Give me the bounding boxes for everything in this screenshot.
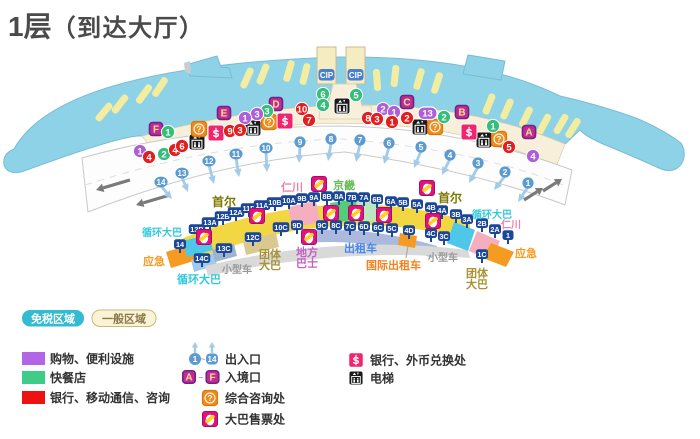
svg-text:3C: 3C — [439, 232, 449, 241]
svg-text:6B: 6B — [372, 195, 381, 204]
svg-text:5C: 5C — [387, 224, 397, 233]
svg-text:出租车: 出租车 — [344, 241, 377, 255]
svg-text:S: S — [465, 127, 472, 139]
svg-text:循环大巴: 循环大巴 — [142, 226, 182, 239]
svg-text:13: 13 — [422, 109, 433, 120]
svg-text:3: 3 — [476, 158, 481, 168]
svg-text:A: A — [525, 128, 532, 139]
svg-text:国际出租车: 国际出租车 — [366, 258, 421, 272]
svg-text:银行、移动通信、咨询: 银行、移动通信、咨询 — [50, 390, 170, 405]
svg-text:小型车: 小型车 — [427, 251, 458, 264]
svg-text:A: A — [185, 373, 192, 384]
svg-text:大巴: 大巴 — [466, 277, 488, 291]
svg-text:F: F — [209, 373, 215, 384]
svg-text:10: 10 — [262, 144, 271, 153]
svg-text:1C: 1C — [477, 250, 487, 259]
svg-text:3: 3 — [264, 106, 269, 117]
svg-text:巴士: 巴士 — [296, 256, 318, 270]
svg-text:1: 1 — [506, 231, 510, 240]
svg-text:大巴售票处: 大巴售票处 — [225, 412, 286, 427]
svg-text:7B: 7B — [347, 193, 356, 202]
svg-text:应急: 应急 — [143, 254, 165, 268]
svg-text:12B: 12B — [216, 212, 229, 221]
svg-text:9B: 9B — [297, 194, 306, 203]
svg-text:1: 1 — [242, 113, 248, 124]
svg-text:5A: 5A — [412, 200, 422, 209]
svg-text:1: 1 — [193, 354, 198, 364]
svg-text:10A: 10A — [282, 196, 296, 205]
svg-text:1层（到达大厅）: 1层（到达大厅） — [8, 11, 205, 42]
svg-text:购物、便利设施: 购物、便利设施 — [50, 351, 134, 366]
svg-text:13C: 13C — [217, 244, 231, 253]
svg-text:2: 2 — [441, 112, 446, 123]
svg-text:7: 7 — [306, 115, 311, 126]
svg-text:14: 14 — [157, 178, 166, 187]
svg-text:电梯: 电梯 — [370, 371, 394, 386]
svg-text:10: 10 — [297, 104, 308, 115]
svg-text:6C: 6C — [373, 223, 383, 232]
svg-text:大巴: 大巴 — [259, 258, 281, 272]
svg-text:团体: 团体 — [466, 266, 489, 280]
svg-text:9: 9 — [227, 126, 232, 137]
svg-text:S: S — [352, 355, 359, 367]
svg-text:1: 1 — [526, 178, 531, 188]
svg-text:5: 5 — [419, 142, 424, 152]
svg-text:S: S — [212, 128, 219, 140]
svg-text:S: S — [281, 116, 288, 128]
svg-text:?: ? — [207, 393, 212, 403]
svg-text:2A: 2A — [490, 225, 500, 234]
svg-text:?: ? — [266, 117, 271, 127]
svg-text:9: 9 — [298, 137, 303, 147]
svg-text:2: 2 — [503, 167, 508, 177]
svg-text:6A: 6A — [386, 197, 396, 206]
svg-text:~: ~ — [198, 373, 203, 383]
svg-text:1: 1 — [490, 121, 496, 132]
svg-text:入境口: 入境口 — [225, 370, 261, 385]
svg-text:?: ? — [496, 134, 501, 144]
svg-text:4: 4 — [530, 151, 536, 162]
svg-text:团体: 团体 — [259, 247, 282, 261]
svg-text:6D: 6D — [359, 222, 368, 231]
svg-text:9D: 9D — [292, 221, 301, 230]
svg-text:C: C — [403, 98, 410, 109]
svg-text:5: 5 — [506, 142, 512, 153]
svg-text:出入口: 出入口 — [225, 352, 261, 367]
svg-text:1: 1 — [389, 117, 395, 128]
svg-text:10B: 10B — [268, 198, 281, 207]
svg-text:8: 8 — [329, 134, 334, 144]
svg-text:9C: 9C — [317, 221, 327, 230]
svg-text:应急: 应急 — [515, 246, 537, 260]
svg-text:2: 2 — [161, 149, 166, 160]
svg-text:8: 8 — [365, 113, 370, 124]
svg-text:8C: 8C — [331, 221, 341, 230]
svg-text:京畿: 京畿 — [333, 178, 355, 192]
svg-text:CIP: CIP — [349, 71, 363, 80]
svg-text:仁川: 仁川 — [281, 180, 303, 194]
svg-text:3A: 3A — [462, 215, 472, 224]
svg-text:10C: 10C — [274, 223, 288, 232]
svg-text:4B: 4B — [426, 203, 435, 212]
svg-text:11: 11 — [232, 150, 241, 159]
svg-text:银行、外币兑换处: 银行、外币兑换处 — [370, 353, 467, 368]
svg-text:CIP: CIP — [320, 71, 334, 80]
svg-text:4: 4 — [448, 150, 453, 160]
svg-text:?: ? — [196, 124, 201, 134]
svg-text:首尔: 首尔 — [438, 190, 462, 205]
svg-text:快餐店: 快餐店 — [50, 370, 86, 385]
svg-text:14: 14 — [176, 240, 185, 249]
svg-text:E: E — [221, 109, 228, 120]
svg-text:6: 6 — [179, 141, 184, 152]
svg-text:6: 6 — [387, 138, 392, 148]
svg-text:B: B — [458, 108, 465, 119]
svg-text:免税区域: 免税区域 — [31, 312, 75, 326]
svg-text:首尔: 首尔 — [212, 194, 236, 209]
svg-text:1: 1 — [165, 127, 171, 138]
svg-text:8B: 8B — [322, 192, 331, 201]
svg-text:3: 3 — [237, 125, 242, 136]
svg-text:5: 5 — [353, 90, 359, 101]
svg-text:9A: 9A — [309, 193, 319, 202]
svg-text:7C: 7C — [345, 222, 355, 231]
svg-text:14C: 14C — [195, 254, 209, 263]
svg-text:4: 4 — [320, 100, 326, 111]
svg-text:F: F — [153, 125, 159, 136]
svg-text:?: ? — [432, 122, 437, 132]
svg-text:仁川: 仁川 — [501, 218, 521, 231]
svg-text:8A: 8A — [334, 192, 344, 201]
svg-text:循环大巴: 循环大巴 — [177, 272, 221, 286]
svg-text:地方: 地方 — [296, 245, 318, 259]
svg-text:2: 2 — [404, 113, 409, 124]
svg-text:一般区域: 一般区域 — [102, 312, 146, 326]
svg-text:4C: 4C — [426, 229, 436, 238]
svg-text:3: 3 — [374, 114, 379, 125]
svg-text:综合咨询处: 综合咨询处 — [225, 391, 286, 406]
svg-text:5B: 5B — [398, 198, 407, 207]
svg-text:12: 12 — [205, 157, 214, 166]
svg-text:13: 13 — [178, 169, 187, 178]
svg-text:14: 14 — [208, 355, 217, 364]
svg-text:4D: 4D — [404, 226, 413, 235]
svg-text:7: 7 — [358, 135, 363, 145]
svg-text:7A: 7A — [359, 193, 369, 202]
svg-text:~: ~ — [200, 354, 205, 364]
svg-text:3B: 3B — [451, 210, 460, 219]
svg-text:12C: 12C — [246, 233, 260, 242]
svg-text:4: 4 — [146, 152, 152, 163]
svg-text:3: 3 — [254, 109, 259, 120]
svg-text:小型车: 小型车 — [221, 263, 252, 276]
